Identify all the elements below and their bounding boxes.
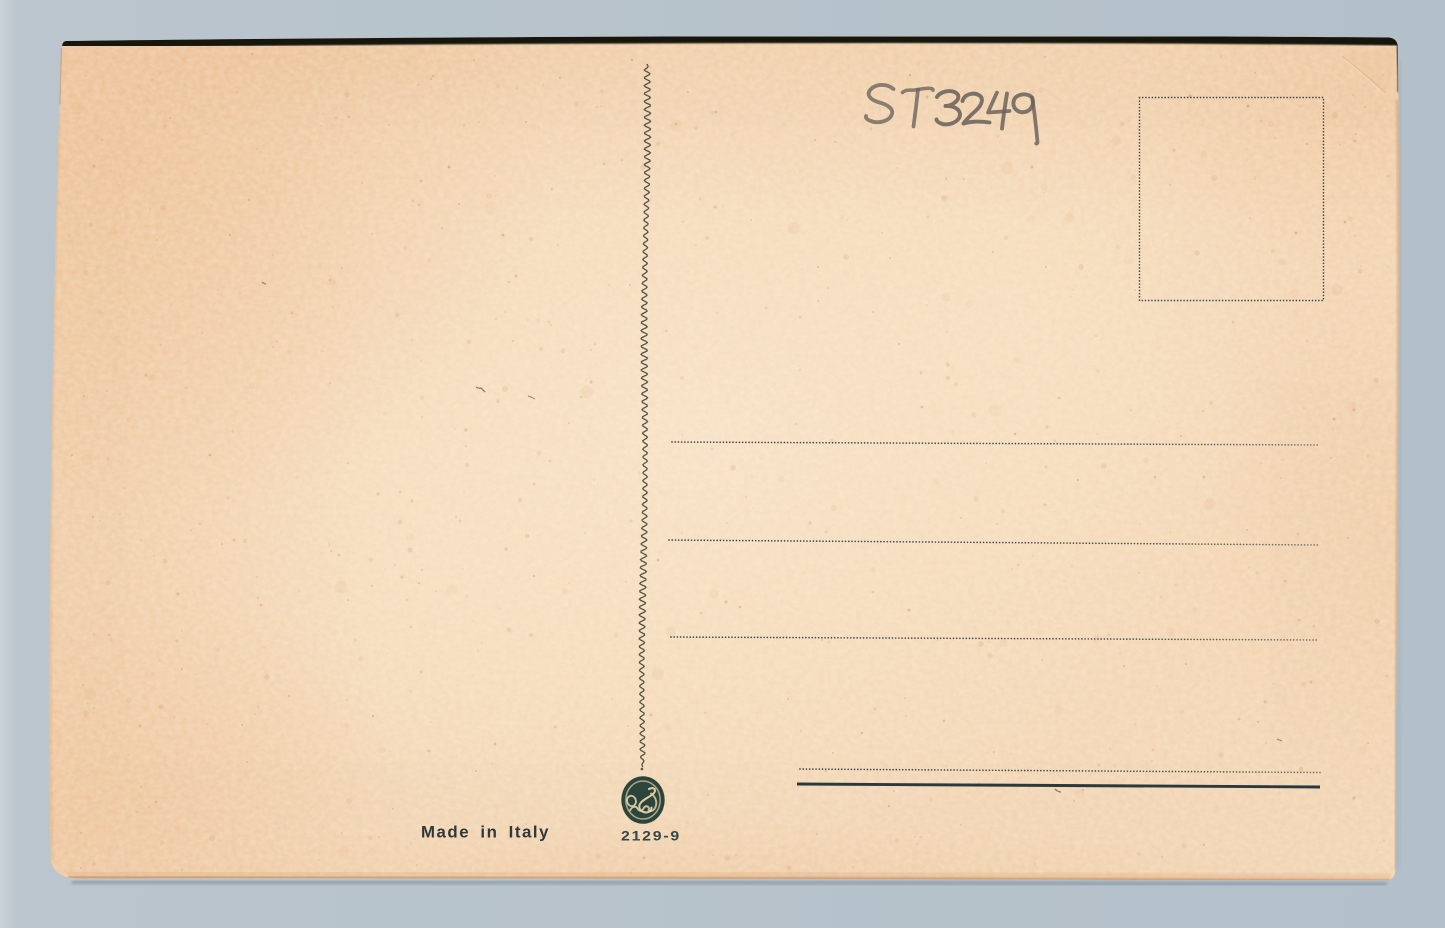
svg-text:Made in Italy: Made in Italy (421, 824, 550, 842)
svg-text:2129-9: 2129-9 (621, 828, 681, 844)
